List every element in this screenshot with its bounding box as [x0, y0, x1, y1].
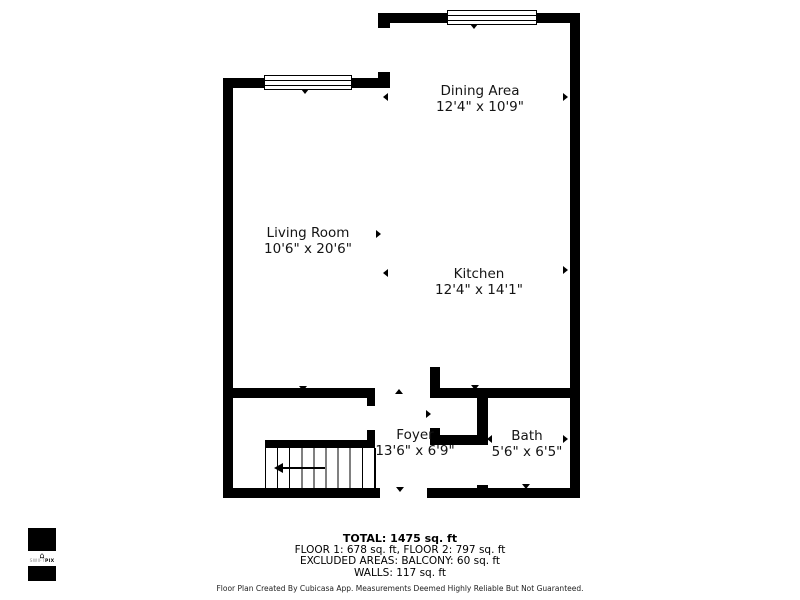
wall-top-stub [378, 23, 390, 28]
room-name: Bath [492, 429, 563, 445]
wall-stairs-top [265, 440, 375, 448]
logo-top-block [28, 528, 56, 551]
walls-area-text: WALLS: 117 sq. ft [0, 568, 800, 580]
door-marker [301, 89, 309, 94]
stairs-direction-arrow-head [274, 463, 283, 473]
wall-bath-left-stub [477, 485, 488, 498]
wall-foyer-stub-upper [367, 398, 375, 406]
door-marker [522, 391, 530, 396]
logo-brand-right: PIX [45, 559, 54, 564]
wall-bottom-left [223, 488, 380, 498]
door-marker [383, 269, 388, 277]
wall-foyer-stub-lower [367, 430, 375, 440]
wall-left [223, 78, 233, 498]
door-marker [563, 435, 568, 443]
room-name: Foyer [375, 428, 454, 444]
room-label-dining-area: Dining Area 12'4" x 10'9" [436, 84, 524, 115]
door-marker [395, 389, 403, 394]
room-dims: 13'6" x 6'9" [375, 444, 454, 460]
door-marker [299, 386, 307, 391]
house-icon: ⌂ [20, 552, 64, 559]
wall-kitchen-bath [440, 388, 570, 398]
door-marker [470, 24, 478, 29]
door-marker [563, 93, 568, 101]
door-marker [563, 266, 568, 274]
wall-right [570, 13, 580, 498]
room-dims: 5'6" x 6'5" [492, 445, 563, 461]
floor-plan-canvas: Dining Area 12'4" x 10'9" Living Room 10… [0, 0, 800, 600]
room-name: Kitchen [435, 267, 523, 283]
room-name: Dining Area [436, 84, 524, 100]
total-area-text: TOTAL: 1475 sq. ft [0, 533, 800, 545]
window-icon-dining [447, 10, 537, 25]
wall-kitchen-stub [430, 367, 440, 398]
door-marker [376, 230, 381, 238]
room-dims: 12'4" x 14'1" [435, 283, 523, 299]
window-icon-living [264, 75, 352, 90]
door-marker [426, 410, 431, 418]
door-marker [396, 487, 404, 492]
door-marker [471, 385, 479, 390]
room-label-bath: Bath 5'6" x 6'5" [492, 429, 563, 460]
room-name: Living Room [264, 226, 352, 242]
door-marker [383, 93, 388, 101]
logo-bottom-block [28, 566, 56, 581]
area-summary: TOTAL: 1475 sq. ft FLOOR 1: 678 sq. ft, … [0, 533, 800, 579]
door-marker [522, 484, 530, 489]
logo-brand-left: SWIFT [30, 559, 45, 564]
room-label-kitchen: Kitchen 12'4" x 14'1" [435, 267, 523, 298]
door-marker [227, 224, 232, 232]
stairs-direction-arrow [283, 467, 325, 469]
door-marker [228, 410, 233, 418]
logo-brand-text: SWIFTPIX [20, 559, 64, 565]
disclaimer-text: Floor Plan Created By Cubicasa App. Meas… [0, 584, 800, 593]
wall-bottom-right [427, 488, 580, 498]
swiftpix-logo: ⌂ SWIFTPIX [20, 528, 64, 581]
room-label-foyer: Foyer 13'6" x 6'9" [375, 428, 454, 459]
room-dims: 10'6" x 20'6" [264, 242, 352, 258]
wall-upper-left-stub [378, 72, 390, 78]
room-label-living-room: Living Room 10'6" x 20'6" [264, 226, 352, 257]
room-dims: 12'4" x 10'9" [436, 100, 524, 116]
